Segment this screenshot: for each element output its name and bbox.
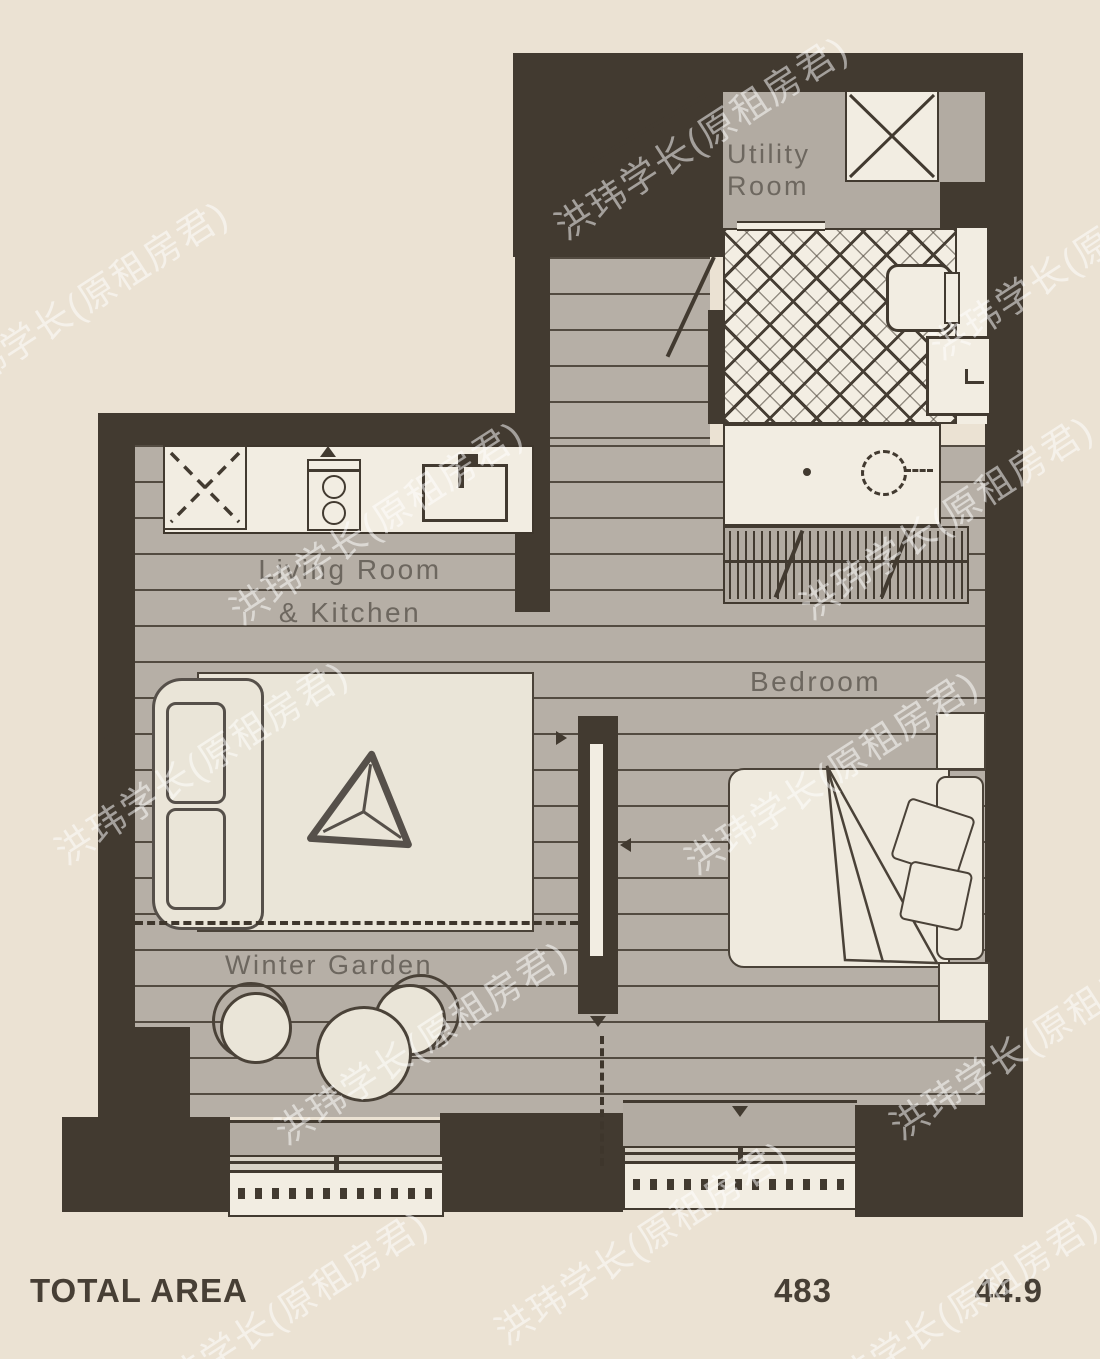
kitchen-unit-x-icon [165, 447, 245, 528]
total-area-sqft-value: 483 [752, 1272, 832, 1310]
shaft-x-icon [847, 92, 937, 180]
window-right-sill-dots [633, 1179, 847, 1190]
hood-marker-icon [320, 446, 336, 457]
pillow-2 [898, 860, 973, 932]
bathroom-threshold [737, 221, 825, 231]
nightstand-top [936, 712, 986, 770]
sofa-cushion-2 [166, 808, 226, 910]
washbasin-notch [965, 369, 984, 384]
living-room-label-line1: Living Room [200, 548, 500, 591]
arrow-marker-down-partition [590, 1016, 606, 1027]
window-left-sill-dots [238, 1188, 434, 1199]
wall-bathroom-left [708, 310, 723, 424]
utility-room-label-line2: Room [727, 170, 811, 202]
arrow-marker-left [620, 838, 631, 852]
winter-garden-boundary-horizontal [135, 921, 578, 925]
sofa-cushion-1 [166, 702, 226, 804]
floor-plan: Utility Room [0, 0, 1100, 1359]
living-room-label-line2: & Kitchen [200, 591, 500, 634]
shaft-box [845, 90, 939, 182]
garden-table [316, 1006, 412, 1102]
chair-1-seat [220, 992, 292, 1064]
wardrobe [723, 526, 969, 604]
winter-garden-boundary-vertical [600, 1036, 604, 1166]
arrow-marker-right [556, 731, 567, 745]
wall-left [98, 413, 135, 1117]
toilet [886, 264, 952, 332]
stove-burner-2 [322, 501, 346, 525]
stove [307, 459, 361, 531]
wardrobe-rail [725, 560, 967, 563]
window-left-mullion [334, 1157, 339, 1170]
watermark-text: 洪玮学长(原租房君) [792, 1195, 1100, 1359]
utility-room-label-line1: Utility [727, 138, 811, 170]
vanity-drain-dot [803, 468, 811, 476]
watermark-text: 洪玮学长(原租房君) [0, 185, 238, 416]
wall-top-left-block [513, 53, 723, 257]
total-area-sqm-value: 44.9 [955, 1272, 1043, 1310]
wardrobe-hangers-hatch [729, 531, 963, 599]
stove-burner-1 [322, 475, 346, 499]
total-area-label: TOTAL AREA [30, 1272, 248, 1310]
window-left-frame [228, 1155, 444, 1172]
hallway-floor [548, 257, 710, 447]
utility-room-label: Utility Room [727, 138, 811, 202]
wall-bottom-left [62, 1117, 230, 1212]
wall-hall-left [515, 257, 550, 612]
kitchen-sink [422, 464, 508, 522]
vanity-counter [723, 424, 941, 526]
bedroom-label: Bedroom [750, 660, 881, 703]
window-left-sill [228, 1171, 444, 1217]
nightstand-bottom [938, 962, 990, 1022]
arrow-marker-wall-left [104, 731, 115, 745]
wall-top [723, 53, 1023, 92]
wall-kitchen-top [98, 413, 515, 445]
washbasin [926, 336, 992, 416]
arrow-marker-down-bedroom [732, 1106, 748, 1117]
living-room-label: Living Room & Kitchen [200, 548, 500, 634]
window-right-sill [623, 1162, 857, 1210]
toilet-tank [944, 272, 960, 324]
kitchen-counter [163, 445, 534, 534]
window-right-mullion [738, 1148, 743, 1161]
kitchen-unit-box [163, 445, 247, 530]
vanity-basin-spout-line [905, 469, 933, 472]
wall-utility-step [940, 182, 985, 228]
sliding-door-panel [590, 744, 603, 956]
sofa [152, 678, 264, 930]
wall-bottom-middle [440, 1113, 623, 1212]
wall-bottom-right [855, 1105, 1023, 1217]
window-right-frame [623, 1146, 857, 1163]
stove-panel-line [309, 469, 359, 472]
wall-left-jut [135, 1027, 190, 1117]
wall-right [985, 53, 1023, 1110]
vanity-basin-dashed-circle [861, 450, 907, 496]
coffee-table [300, 742, 432, 860]
faucet-flag [464, 454, 478, 465]
